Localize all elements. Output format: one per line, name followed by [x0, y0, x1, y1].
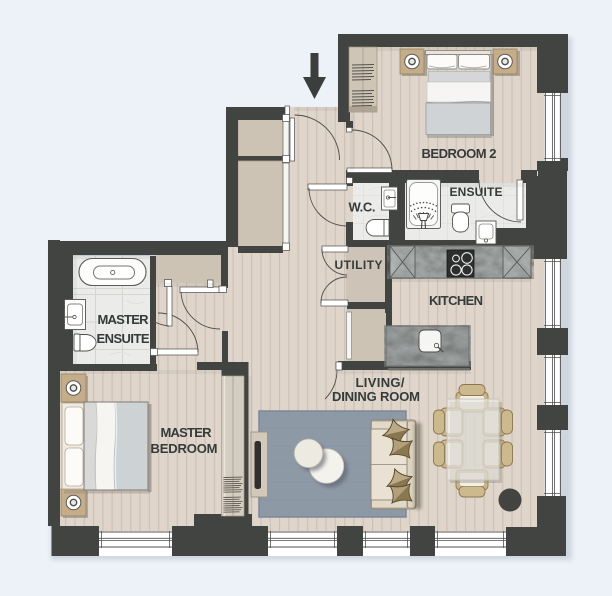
svg-text:BEDROOM: BEDROOM — [151, 441, 218, 456]
svg-text:KITCHEN: KITCHEN — [429, 293, 483, 308]
svg-text:ENSUITE: ENSUITE — [450, 185, 503, 199]
svg-text:UTILITY: UTILITY — [335, 258, 383, 272]
svg-text:BEDROOM 2: BEDROOM 2 — [422, 146, 497, 161]
svg-text:W.C.: W.C. — [349, 200, 376, 215]
svg-text:MASTER: MASTER — [161, 425, 213, 440]
svg-text:DINING ROOM: DINING ROOM — [332, 389, 420, 404]
svg-text:MASTER: MASTER — [98, 312, 150, 327]
svg-text:LIVING/: LIVING/ — [356, 375, 405, 390]
svg-text:ENSUITE: ENSUITE — [97, 331, 150, 346]
